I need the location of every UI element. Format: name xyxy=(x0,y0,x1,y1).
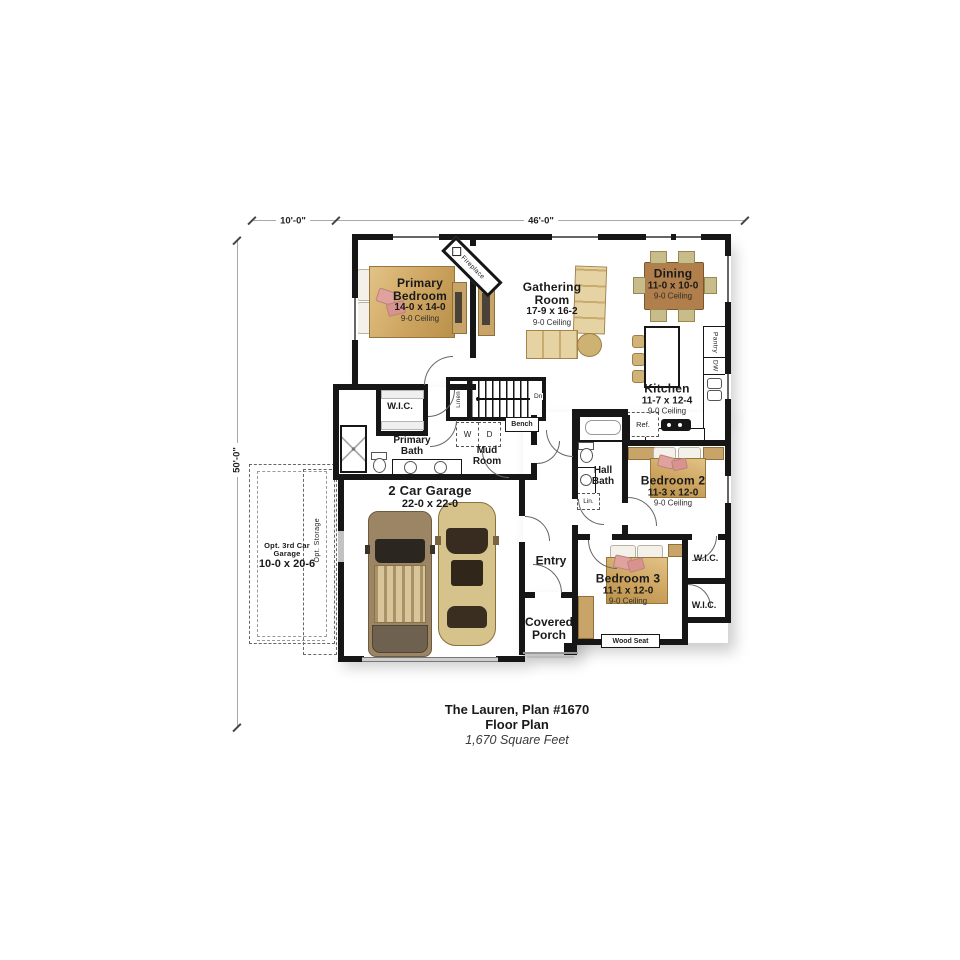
wall-segment xyxy=(496,656,525,662)
wall-segment xyxy=(519,542,525,598)
loveseat-icon xyxy=(526,330,578,359)
toilet-bowl xyxy=(373,458,386,473)
entry-label: Entry xyxy=(536,554,567,567)
wood-seat-label: Wood Seat xyxy=(612,638,648,645)
closet-shelf xyxy=(381,390,424,399)
wall-segment xyxy=(338,474,344,662)
car-rear-window xyxy=(447,606,487,628)
dimension-label-46ft: 46'-0" xyxy=(524,216,558,227)
truck-windshield xyxy=(375,539,425,563)
washer-label: W xyxy=(464,430,472,439)
garage-door-line xyxy=(362,657,498,662)
covered-porch-label: Covered Porch xyxy=(517,616,581,642)
wic-label-primary: W.I.C. xyxy=(387,402,413,412)
stairs-dn-label: Dn xyxy=(533,393,543,400)
dishwasher-label: DW xyxy=(712,360,719,372)
dryer-box: D xyxy=(478,422,501,447)
truck-mirror xyxy=(365,545,370,554)
wall-segment xyxy=(688,578,725,584)
hall-bath-label: Hall Bath xyxy=(584,465,622,487)
floor-plan: 10'-0" 46'-0" 50'-0" Opt. 3rd Car Garage… xyxy=(0,0,960,960)
stove-icon xyxy=(661,419,691,431)
wall-segment xyxy=(338,656,364,662)
window xyxy=(725,476,731,503)
window xyxy=(552,234,598,240)
wall-segment xyxy=(333,384,339,480)
dining-chair-icon xyxy=(678,309,695,322)
nightstand-icon xyxy=(703,447,724,460)
car-mirror xyxy=(493,536,499,545)
opt-storage-label: Opt. Storage xyxy=(314,518,321,563)
primary-bath-label: Primary Bath xyxy=(384,435,440,457)
window xyxy=(725,256,731,302)
stair-arrow-line xyxy=(478,398,530,400)
shower-icon xyxy=(340,425,367,473)
dining-chair-icon xyxy=(678,251,695,264)
optional-garage-door-line xyxy=(257,640,325,641)
title-block: The Lauren, Plan #1670 Floor Plan 1,670 … xyxy=(437,703,597,747)
dimension-label-50ft: 50'-0" xyxy=(232,443,243,477)
room-label-bedroom3: Bedroom 3 11-1 x 12-0 9-0 Ceiling xyxy=(583,572,673,605)
room-label-bedroom2: Bedroom 2 11-3 x 12-0 9-0 Ceiling xyxy=(628,474,718,507)
wall-segment xyxy=(572,409,628,415)
wall-segment xyxy=(519,474,525,516)
car-sunroof xyxy=(451,560,483,586)
vanity-sink-icon xyxy=(404,461,417,474)
dining-chair-icon xyxy=(650,251,667,264)
wall-segment xyxy=(612,534,692,540)
dimension-label-10ft: 10'-0" xyxy=(276,216,310,227)
window xyxy=(352,298,358,340)
bench: Bench xyxy=(505,417,539,432)
plan-subtitle: Floor Plan xyxy=(437,718,597,733)
room-label-opt-garage: Opt. 3rd Car Garage 10-0 x 20-6 xyxy=(250,542,324,570)
wall-segment xyxy=(718,534,731,540)
wall-segment xyxy=(352,384,424,390)
room-label-primary-bedroom: Primary Bedroom 14-0 x 14-0 9-0 Ceiling xyxy=(370,277,470,323)
dryer-label: D xyxy=(487,430,493,439)
window xyxy=(725,374,731,399)
mud-room-label: Mud Room xyxy=(462,445,512,467)
car-mirror xyxy=(435,536,441,545)
truck-tailgate xyxy=(372,625,428,653)
wall-segment xyxy=(688,617,731,623)
truck-mirror xyxy=(430,545,435,554)
tub-basin xyxy=(585,420,621,435)
wall-segment xyxy=(656,639,688,645)
toilet-bowl xyxy=(580,448,593,463)
room-label-kitchen: Kitchen 11-7 x 12-4 9-0 Ceiling xyxy=(622,382,712,415)
burner-dot xyxy=(678,423,682,427)
burner-dot xyxy=(667,423,671,427)
fireplace-icon xyxy=(452,247,461,256)
window xyxy=(393,234,439,240)
room-label-dining: Dining 11-0 x 10-0 9-0 Ceiling xyxy=(638,267,708,300)
suv-car-icon xyxy=(438,502,496,646)
window xyxy=(646,234,671,240)
kitchen-island-icon xyxy=(644,326,680,388)
pickup-truck-icon xyxy=(368,505,432,657)
round-chair-icon xyxy=(577,333,602,357)
wall-segment xyxy=(470,234,476,246)
plan-title: The Lauren, Plan #1670 xyxy=(437,703,597,718)
bench-label: Bench xyxy=(511,421,532,428)
console-front xyxy=(482,293,490,325)
wood-seat: Wood Seat xyxy=(601,634,660,648)
truck-bed xyxy=(374,565,426,623)
room-label-gathering: Gathering Room 17-9 x 16-2 9-0 Ceiling xyxy=(510,281,594,327)
pantry-cabinet: Pantry xyxy=(703,326,727,359)
dining-chair-icon xyxy=(650,309,667,322)
pantry-label: Pantry xyxy=(712,332,719,353)
porch-step-line xyxy=(523,652,578,654)
refrigerator-box: Ref. xyxy=(627,412,659,437)
window xyxy=(676,234,701,240)
closet-shelf xyxy=(381,421,424,430)
porch-step-line xyxy=(527,656,574,658)
wall-segment xyxy=(628,440,731,446)
dimension-line-left xyxy=(237,240,238,728)
wic-label-1: W.I.C. xyxy=(694,554,719,564)
plan-square-feet: 1,670 Square Feet xyxy=(437,733,597,747)
car-windshield xyxy=(446,528,488,554)
room-label-garage: 2 Car Garage 22-0 x 22-0 xyxy=(365,484,495,510)
washer-box: W xyxy=(456,422,479,447)
wall-segment xyxy=(531,463,537,480)
garage-side-window xyxy=(338,531,344,562)
stair-arrow-dot xyxy=(476,397,480,401)
linen-label: Linen xyxy=(456,391,462,408)
wic-label-2: W.I.C. xyxy=(692,601,717,611)
dishwasher: DW xyxy=(703,357,727,375)
dimension-line-top xyxy=(251,220,745,221)
toilet-icon xyxy=(578,442,593,462)
vanity-sink-icon xyxy=(434,461,447,474)
refrigerator-label: Ref. xyxy=(636,420,650,429)
